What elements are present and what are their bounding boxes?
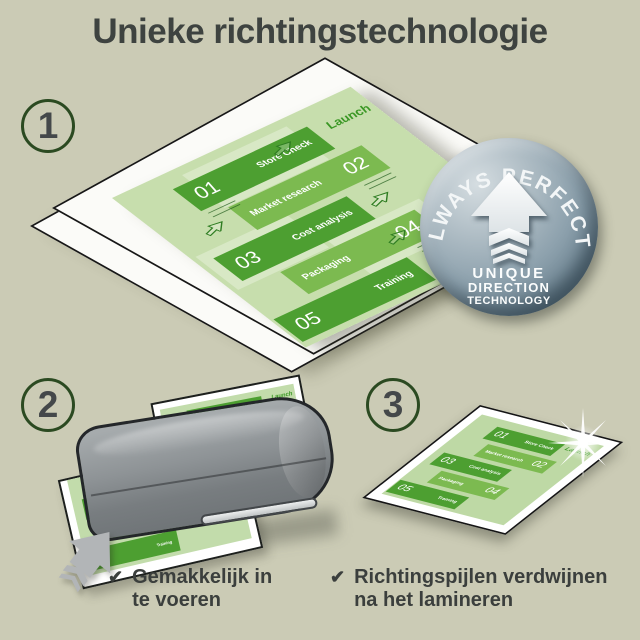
band-number: 01 (189, 179, 227, 202)
band-label: Training (436, 495, 460, 504)
band-number: 03 (229, 249, 267, 272)
band-number: 04 (481, 487, 501, 497)
step-1-number: 1 (21, 99, 75, 153)
page-title: Unieke richtingstechnologie (0, 12, 640, 52)
step-3-label: 3 (383, 384, 404, 426)
checklist-text: Richtingspijlen verdwijnen na het lamine… (354, 566, 630, 612)
checkmark-icon: ✔ (330, 566, 345, 612)
band-label: Market research (483, 449, 525, 462)
badge-art: ALWAYS PERFECT! UNIQUE DIRECTION TECHNOL… (420, 138, 598, 316)
band-number: 03 (437, 456, 457, 466)
direction-arrow-icon (356, 184, 399, 209)
launch-label: Launch (322, 102, 375, 131)
band-label: Training (156, 539, 172, 547)
direction-arrow-icon (190, 214, 233, 239)
band-number: 01 (490, 431, 510, 441)
step-3-number: 3 (366, 378, 420, 432)
checklist-item-arrows-disappear: ✔ Richtingspijlen verdwijnen na het lami… (330, 566, 630, 612)
step-1-label: 1 (38, 105, 59, 147)
step-2-number: 2 (21, 378, 75, 432)
band-label: Packaging (300, 254, 354, 282)
badge-line-technology: TECHNOLOGY (467, 295, 551, 307)
checklist-text: Gemakkelijk in te voeren (132, 566, 293, 612)
band-label: Cost analysis (466, 464, 502, 476)
step-2-label: 2 (38, 384, 59, 426)
always-perfect-badge: ALWAYS PERFECT! UNIQUE DIRECTION TECHNOL… (420, 138, 598, 316)
checkmark-icon: ✔ (108, 566, 123, 612)
band-label: Training (372, 269, 416, 292)
laminator-end-cap (273, 403, 332, 501)
band-label: Packaging (436, 476, 465, 486)
infographic-page: Unieke richtingstechnologie 1 2 3 01 Sto… (0, 0, 640, 640)
checklist-item-easy-feed: ✔ Gemakkelijk in te voeren (108, 566, 293, 612)
badge-line-direction: DIRECTION (468, 280, 550, 295)
band-number: 05 (394, 484, 414, 494)
band-number: 02 (337, 154, 375, 177)
shine-sparkle-icon (546, 406, 620, 480)
band-number: 05 (289, 310, 327, 333)
